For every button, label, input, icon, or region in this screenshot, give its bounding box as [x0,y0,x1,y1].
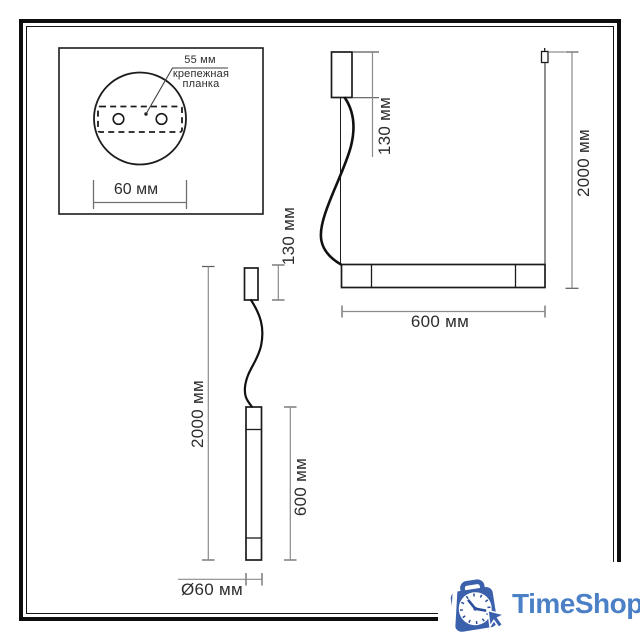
dim-label-pendant-height: 2000 мм [188,380,208,448]
bar-lamp-canopy [332,52,353,98]
mounting-plate-view [59,48,263,214]
mount-hole-right [156,114,167,125]
plate-view-box [59,48,263,214]
vertical-lamp-power-cable [245,300,263,407]
bar-lamp-power-cable [321,98,354,265]
dim-label-hole-spacing: 55 мм [184,54,215,66]
dim-label-pendant-canopy: 130 мм [279,207,299,265]
dim-label-tube-diameter: Ø60 мм [181,580,243,600]
base-circle [94,73,186,165]
diagram-canvas [0,0,640,640]
timeshop-logo[interactable]: TimeShop [444,575,640,637]
logo-brand-text: TimeShop [512,588,640,620]
vertical-lamp-canopy [245,268,259,300]
cursor-icon [487,608,505,628]
dim-label-bar-canopy: 130 мм [375,97,395,155]
mount-hole-left [113,114,124,125]
dim-label-bar-width: 600 мм [411,312,469,332]
label-mounting-bracket-2: планка [183,78,220,90]
technical-drawing-page: 55 мм крепежная планка 60 мм 130 мм 2000… [0,0,640,640]
dim-label-bar-height: 2000 мм [574,129,594,197]
dim-label-tube-length: 600 мм [291,458,311,516]
vertical-canopy-dimension [272,265,285,300]
ceiling-attachment [542,48,549,63]
mounting-bracket-dashed [98,107,182,133]
bar-lamp-drawing [321,48,579,318]
alarm-clock-shopping-bag-icon [444,575,510,639]
dim-label-base-width: 60 мм [114,181,158,199]
